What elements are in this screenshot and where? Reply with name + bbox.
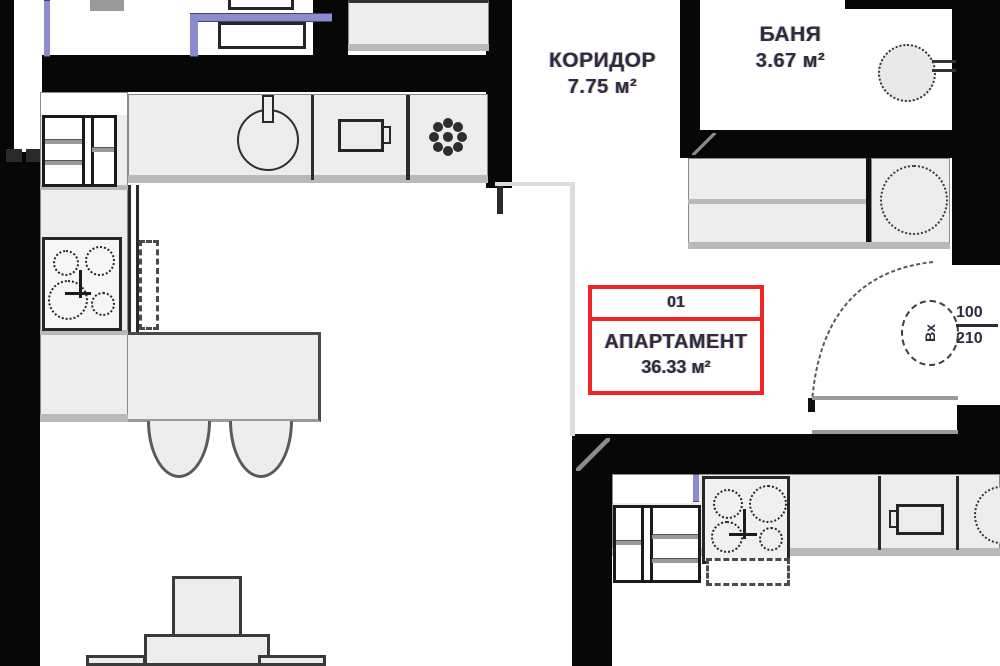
counter-divider xyxy=(878,476,881,550)
appliance-icon xyxy=(338,119,384,152)
wall-left-main xyxy=(0,152,40,666)
counter-edge xyxy=(128,175,488,183)
wall-stub xyxy=(497,186,503,214)
counter-edge xyxy=(40,414,128,422)
apartment-area: 36.33 м² xyxy=(641,355,710,379)
bathroom-name: БАНЯ xyxy=(708,22,873,48)
wall-hatch-mark xyxy=(692,133,716,155)
door-height-label: 210 xyxy=(956,329,983,348)
counter-edge xyxy=(688,242,950,249)
counter-accent xyxy=(693,474,699,502)
dining-table xyxy=(144,634,270,666)
appliance-dashed-outline xyxy=(139,240,159,330)
wall-corner-hatch xyxy=(576,438,610,471)
stove-icon xyxy=(42,237,122,331)
apartment-highlight-box[interactable]: 01 АПАРТАМЕНТ 36.33 м² xyxy=(588,285,764,395)
bar-chair xyxy=(229,421,293,478)
desk-purple-top xyxy=(190,13,332,22)
corridor-name: КОРИДОР xyxy=(515,48,690,74)
wall-top-right-strip xyxy=(845,0,1000,9)
desk-purple-side xyxy=(190,13,198,57)
appliance-icon xyxy=(896,504,944,535)
stove-icon xyxy=(702,476,790,564)
vanity-divider xyxy=(688,199,868,204)
shelf-unit xyxy=(228,0,294,10)
wall-dash-b xyxy=(26,149,40,162)
bar-chair xyxy=(147,421,211,478)
door-dimensions: 100 210 xyxy=(956,303,1000,348)
appliance-knob-icon xyxy=(382,126,391,144)
desk-unit xyxy=(218,22,306,49)
wall-top-horizontal xyxy=(42,55,494,92)
door-width-label: 100 xyxy=(956,303,983,322)
counter-top-row xyxy=(128,94,488,182)
wall-bathroom-bottom xyxy=(688,130,953,158)
apartment-number: 01 xyxy=(592,289,760,317)
counter-edge xyxy=(348,44,489,51)
dining-chair xyxy=(86,655,146,666)
corridor-label: КОРИДОР 7.75 м² xyxy=(515,48,690,100)
counter-divider xyxy=(406,95,410,180)
area-boundary-line xyxy=(495,182,575,186)
cabinet-icon xyxy=(42,115,117,187)
wall-corridor-left xyxy=(486,0,512,188)
counter-gap xyxy=(41,93,127,115)
threshold-line xyxy=(812,430,958,434)
cabinet-icon xyxy=(613,505,701,583)
sink-tap-icon xyxy=(262,95,274,123)
door-mark-label: Вх xyxy=(922,324,938,342)
appliance-dashed-outline xyxy=(706,558,790,586)
bathroom-area: 3.67 м² xyxy=(708,48,873,74)
bathroom-label: БАНЯ 3.67 м² xyxy=(708,22,873,74)
fraction-line xyxy=(956,324,998,327)
wall-bottom-horizontal xyxy=(572,434,1000,475)
appliance-knob-icon xyxy=(889,510,898,528)
apartment-title: АПАРТАМЕНТ xyxy=(604,330,747,355)
dining-chair xyxy=(172,576,242,638)
wall-bedroom-right xyxy=(313,0,348,57)
dining-chair xyxy=(258,655,326,666)
door-stop-tick xyxy=(808,398,815,412)
wall-left-top xyxy=(0,0,14,160)
basin-stem xyxy=(932,60,956,63)
wall-bottom-left-column xyxy=(572,470,612,666)
floor-plan: Вх 100 210 КОРИДОР 7.75 м² БАНЯ 3.67 м² xyxy=(0,0,1000,666)
corridor-area: 7.75 м² xyxy=(515,74,690,100)
washbasin-icon xyxy=(878,44,936,102)
wall-dash-a xyxy=(6,149,22,162)
furniture-stub xyxy=(90,0,124,11)
bar-table xyxy=(128,332,321,422)
basin-stem xyxy=(932,69,956,72)
threshold-line xyxy=(812,396,958,400)
wall-right-upper xyxy=(952,9,1000,265)
window-accent-left xyxy=(44,0,50,57)
counter-divider xyxy=(311,95,314,180)
counter-gap xyxy=(613,475,699,503)
vent-flower-icon xyxy=(443,132,452,141)
area-boundary-line xyxy=(570,182,575,436)
door-mark-circle: Вх xyxy=(901,300,959,366)
round-basin-icon xyxy=(880,165,948,235)
counter-divider xyxy=(956,476,959,550)
